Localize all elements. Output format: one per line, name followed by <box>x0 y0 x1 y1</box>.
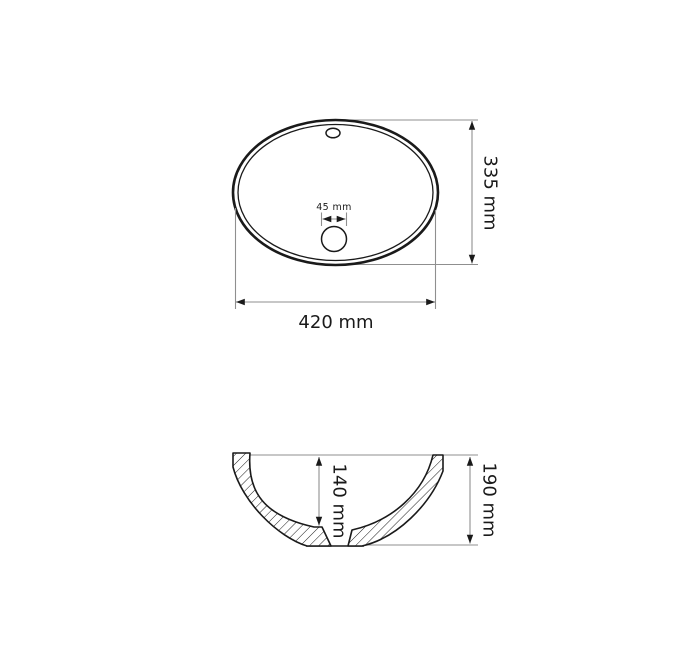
section-shell-left <box>233 453 331 546</box>
height-dimension-label: 335 mm <box>480 155 501 230</box>
section-view: 140 mm 190 mm <box>233 453 500 546</box>
overall-height-dimension-label: 190 mm <box>479 462 500 537</box>
top-view: 45 mm 420 mm 335 mm <box>233 120 501 333</box>
washbasin-technical-drawing: 45 mm 420 mm 335 mm 140 mm <box>0 0 673 672</box>
drawing-canvas: 45 mm 420 mm 335 mm 140 mm <box>0 0 673 672</box>
depth-dimension-label: 140 mm <box>329 463 350 538</box>
section-shell-right <box>348 455 443 546</box>
basin-outer-rim <box>233 120 438 265</box>
width-dimension-label: 420 mm <box>298 312 373 333</box>
drain-dimension-label: 45 mm <box>316 202 352 213</box>
